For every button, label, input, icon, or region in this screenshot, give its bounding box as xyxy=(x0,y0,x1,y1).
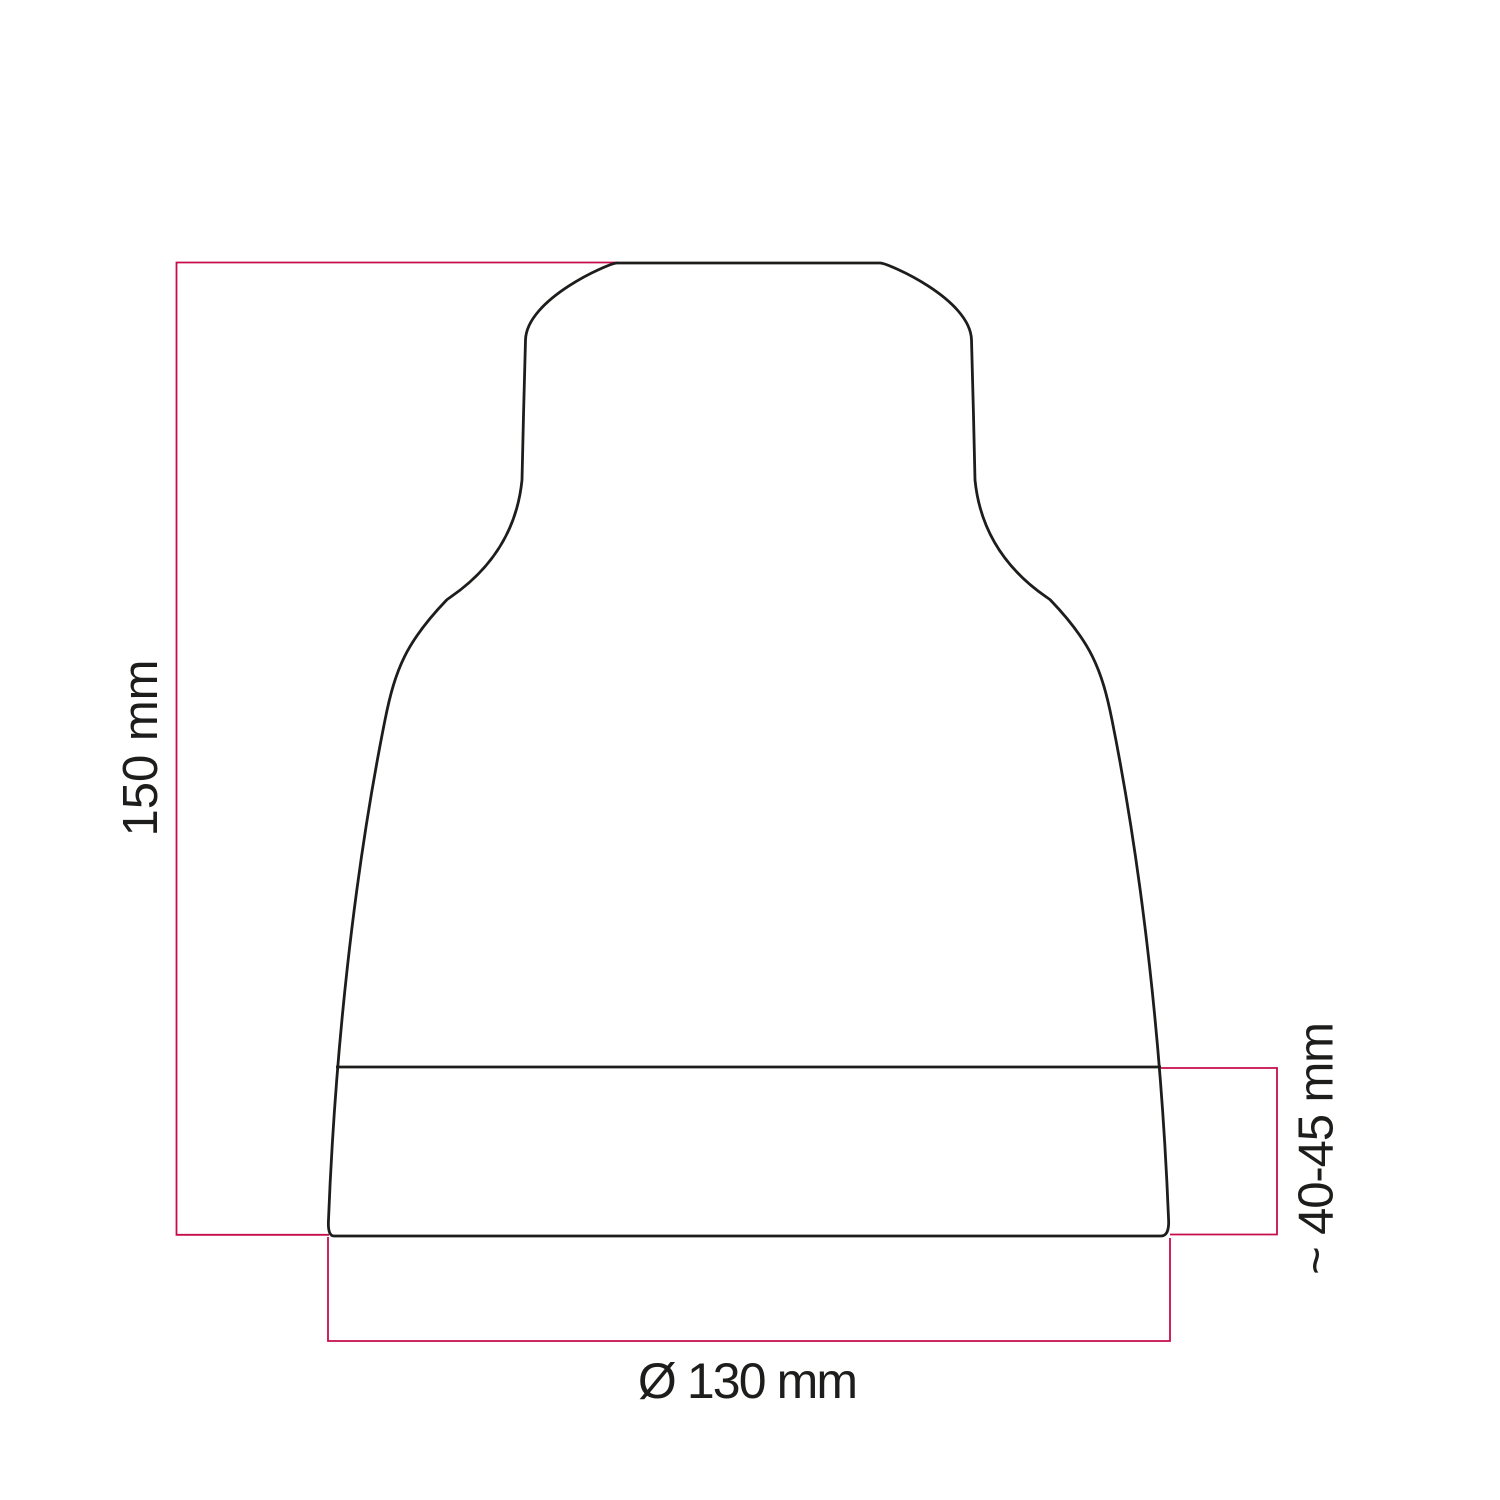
svg-text:~ 40-45 mm: ~ 40-45 mm xyxy=(1290,1023,1344,1275)
svg-text:150 mm: 150 mm xyxy=(114,659,168,836)
svg-text:Ø 130 mm: Ø 130 mm xyxy=(638,1353,856,1409)
